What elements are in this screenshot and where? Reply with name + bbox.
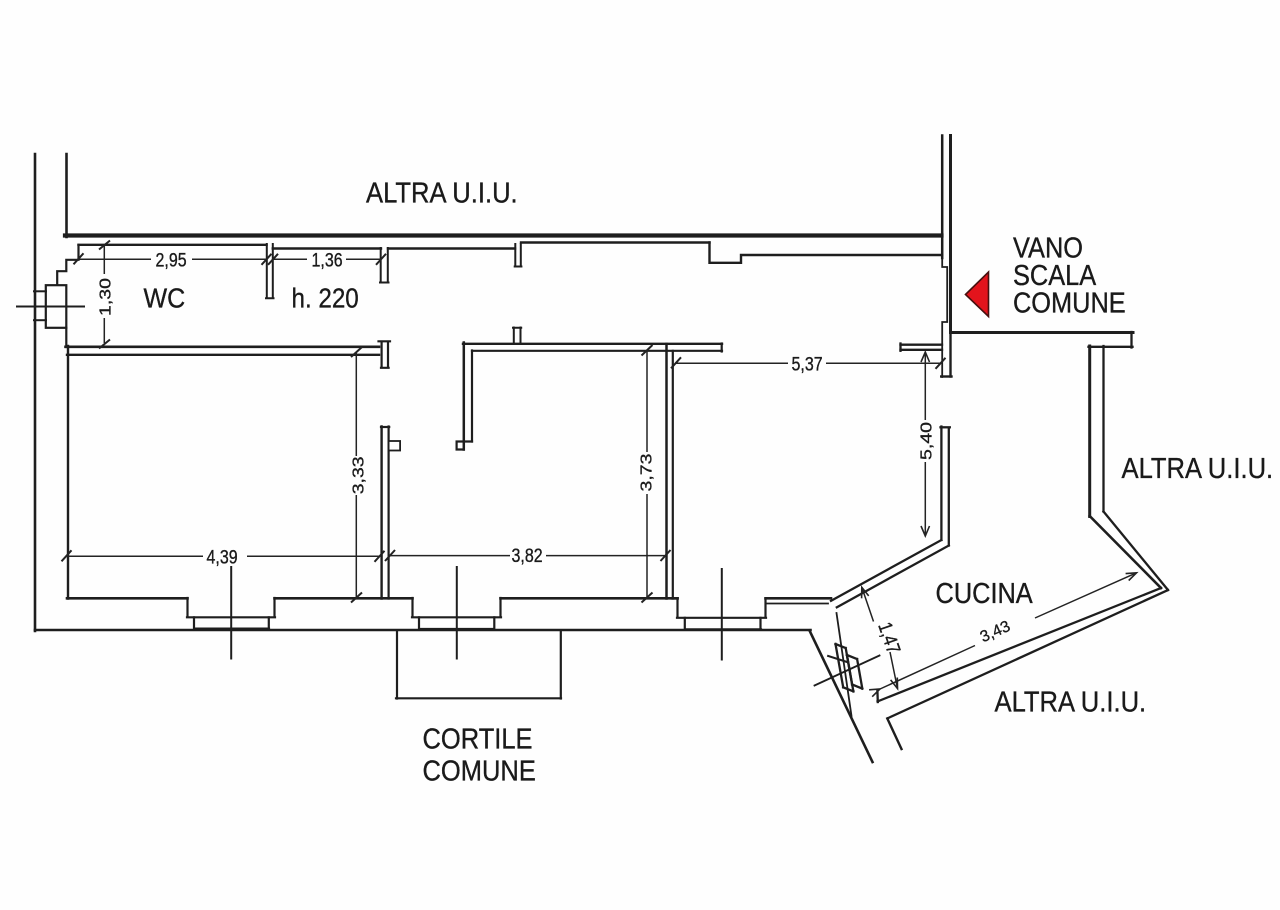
svg-text:h. 220: h. 220 xyxy=(292,284,359,314)
svg-text:5,40: 5,40 xyxy=(917,422,935,460)
svg-text:5,37: 5,37 xyxy=(792,353,823,375)
svg-text:COMUNE: COMUNE xyxy=(423,754,536,787)
svg-text:3,73: 3,73 xyxy=(637,453,655,491)
svg-text:WC: WC xyxy=(144,282,186,313)
svg-text:3,33: 3,33 xyxy=(349,456,367,494)
svg-text:ALTRA U.I.U.: ALTRA U.I.U. xyxy=(995,685,1147,718)
svg-text:1,30: 1,30 xyxy=(96,278,114,316)
svg-text:1,36: 1,36 xyxy=(312,249,343,271)
svg-text:ALTRA U.I.U.: ALTRA U.I.U. xyxy=(1122,451,1274,484)
svg-text:ALTRA U.I.U.: ALTRA U.I.U. xyxy=(366,176,518,209)
svg-text:3,82: 3,82 xyxy=(512,545,543,567)
svg-text:4,39: 4,39 xyxy=(207,546,238,568)
svg-text:CORTILE: CORTILE xyxy=(423,722,533,755)
svg-text:COMUNE: COMUNE xyxy=(1013,287,1126,319)
svg-text:2,95: 2,95 xyxy=(156,249,187,271)
svg-text:CUCINA: CUCINA xyxy=(936,576,1034,609)
